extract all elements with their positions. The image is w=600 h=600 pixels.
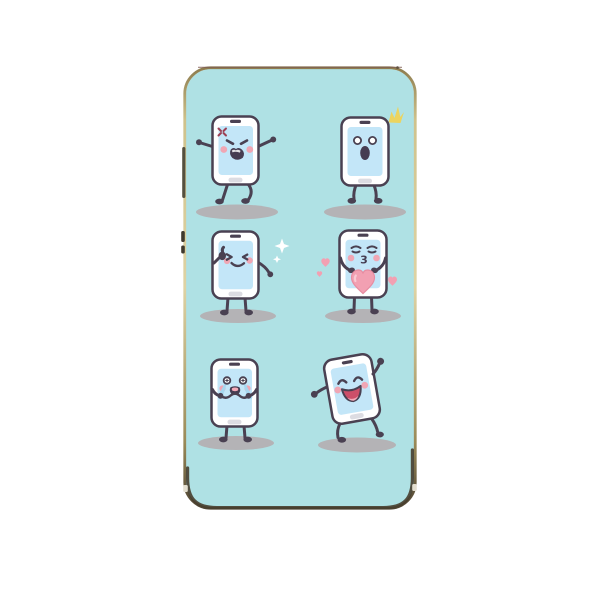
right-hand <box>267 271 273 277</box>
speaker-slot <box>229 363 240 366</box>
home-button <box>228 420 242 425</box>
top-notch-dot <box>396 66 399 69</box>
gasping-mouth <box>360 146 370 160</box>
side-rail-shade <box>182 147 185 198</box>
right-eye <box>369 137 376 144</box>
right-foot <box>376 432 384 438</box>
left-foot <box>219 437 228 443</box>
shadow <box>318 438 396 453</box>
right-foot <box>241 198 250 204</box>
shadow <box>324 205 406 220</box>
speaker-slot <box>230 120 241 123</box>
phone-case-product-image: 3 <box>0 0 600 600</box>
right-cheek <box>246 146 253 153</box>
shadow <box>198 436 274 450</box>
home-button <box>229 178 243 183</box>
thumb <box>222 247 223 251</box>
tilted-phone-body-group <box>323 353 382 425</box>
speaker-slot <box>230 235 241 238</box>
left-eye <box>354 137 361 144</box>
right-foot <box>370 309 379 315</box>
right-foot <box>244 310 253 316</box>
right-closed-eye <box>369 252 376 253</box>
speaker-slot <box>360 121 371 124</box>
right-fist <box>270 137 276 143</box>
kiss-mouth: 3 <box>360 254 368 267</box>
shadow <box>200 309 276 323</box>
left-foot <box>338 437 347 443</box>
left-fist <box>196 139 202 145</box>
left-fist <box>311 391 318 398</box>
power-button <box>181 246 185 254</box>
left-closed-eye <box>353 252 360 253</box>
phone-case-illustration: 3 <box>0 0 600 600</box>
left-foot <box>215 199 224 205</box>
left-foot <box>348 198 357 204</box>
right-foot <box>374 198 383 204</box>
left-cheek <box>220 146 227 153</box>
left-foot <box>220 310 229 316</box>
antenna-notch-left <box>183 485 188 492</box>
tongue <box>232 388 238 392</box>
left-foot <box>347 309 356 315</box>
right-foot <box>243 437 252 443</box>
volume-button <box>181 231 185 242</box>
speaker-slot <box>358 234 369 237</box>
left-cheek <box>348 255 355 262</box>
shadow <box>196 205 278 220</box>
home-button <box>358 179 372 184</box>
raised-fist <box>377 358 384 365</box>
home-button <box>229 292 243 297</box>
shadow <box>325 309 401 323</box>
right-cheek <box>373 255 380 262</box>
heart-highlight <box>355 276 356 282</box>
antenna-notch-right <box>412 484 417 491</box>
